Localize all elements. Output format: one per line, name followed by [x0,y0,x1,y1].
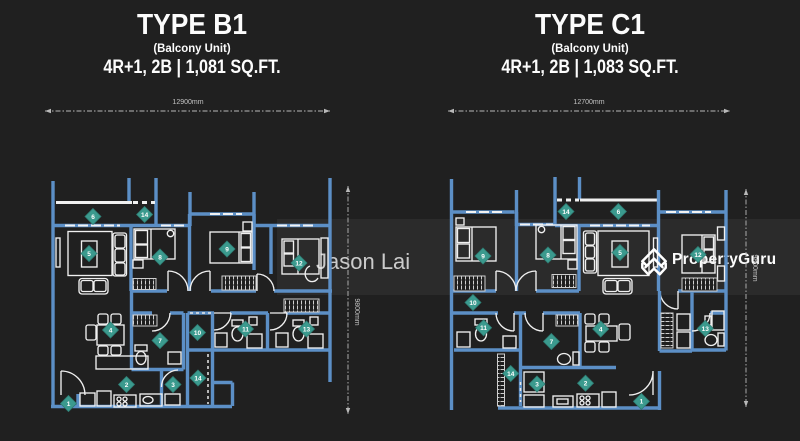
svg-text:7: 7 [158,338,162,345]
svg-text:3: 3 [171,382,175,389]
svg-text:11: 11 [480,325,487,332]
svg-text:8: 8 [158,254,162,261]
svg-text:12700mm: 12700mm [573,99,604,106]
svg-text:13: 13 [303,326,311,333]
svg-text:12: 12 [694,252,702,259]
svg-text:5: 5 [87,251,91,258]
svg-text:14: 14 [141,212,149,219]
svg-text:1: 1 [640,399,644,406]
svg-text:9800mm: 9800mm [751,254,758,281]
svg-text:6: 6 [617,209,621,216]
svg-text:1: 1 [67,401,71,408]
svg-text:14: 14 [562,209,570,216]
svg-text:13: 13 [702,326,710,333]
svg-text:12900mm: 12900mm [172,99,203,106]
svg-text:9: 9 [225,246,229,253]
svg-text:5: 5 [618,250,622,257]
svg-text:4: 4 [599,326,603,333]
svg-text:12: 12 [295,260,303,267]
svg-text:4: 4 [109,327,113,334]
svg-text:11: 11 [242,326,249,333]
svg-text:2: 2 [125,382,129,389]
svg-text:10: 10 [469,300,477,307]
svg-text:6: 6 [91,214,95,221]
svg-text:9800mm: 9800mm [353,298,360,325]
svg-text:8: 8 [546,252,550,259]
svg-text:2: 2 [584,381,588,388]
svg-text:3: 3 [535,381,539,388]
svg-text:14: 14 [507,371,515,378]
svg-text:14: 14 [194,375,202,382]
svg-text:7: 7 [550,339,554,346]
svg-text:10: 10 [194,330,202,337]
svg-text:9: 9 [481,253,485,260]
